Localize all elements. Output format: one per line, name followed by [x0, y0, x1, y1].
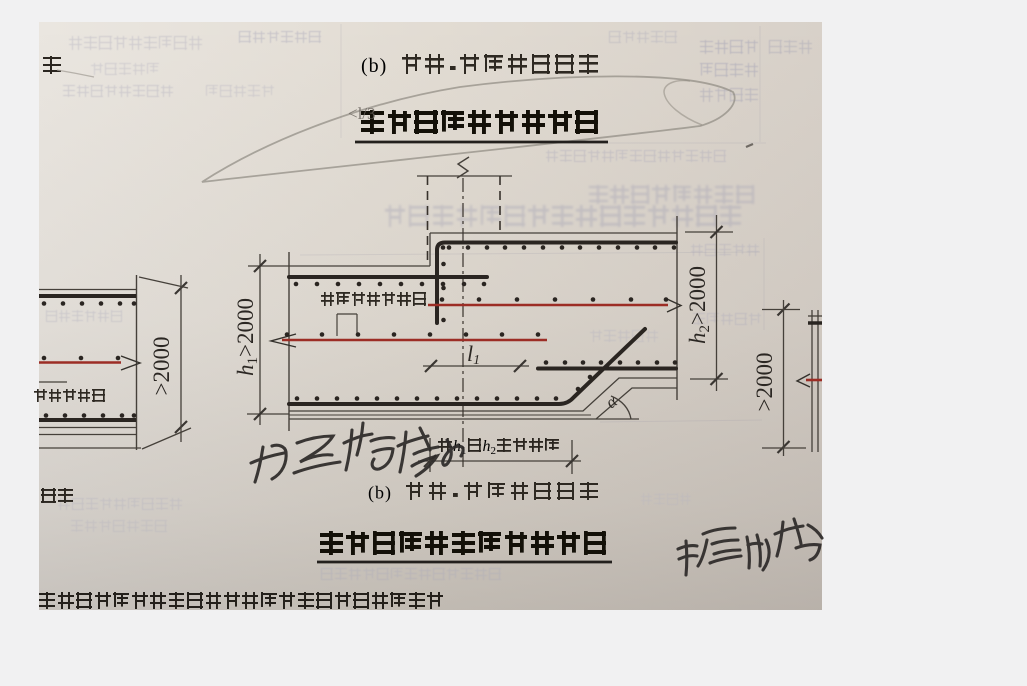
- svg-text:α: α: [602, 391, 621, 412]
- svg-text:>2000: >2000: [149, 337, 174, 396]
- svg-text:h2>2000: h2>2000: [685, 266, 713, 344]
- svg-text:h1>2000: h1>2000: [233, 298, 261, 376]
- svg-text:>2000: >2000: [752, 353, 777, 412]
- svg-text:<l/3: <l/3: [348, 104, 376, 123]
- svg-text:l1: l1: [467, 341, 480, 368]
